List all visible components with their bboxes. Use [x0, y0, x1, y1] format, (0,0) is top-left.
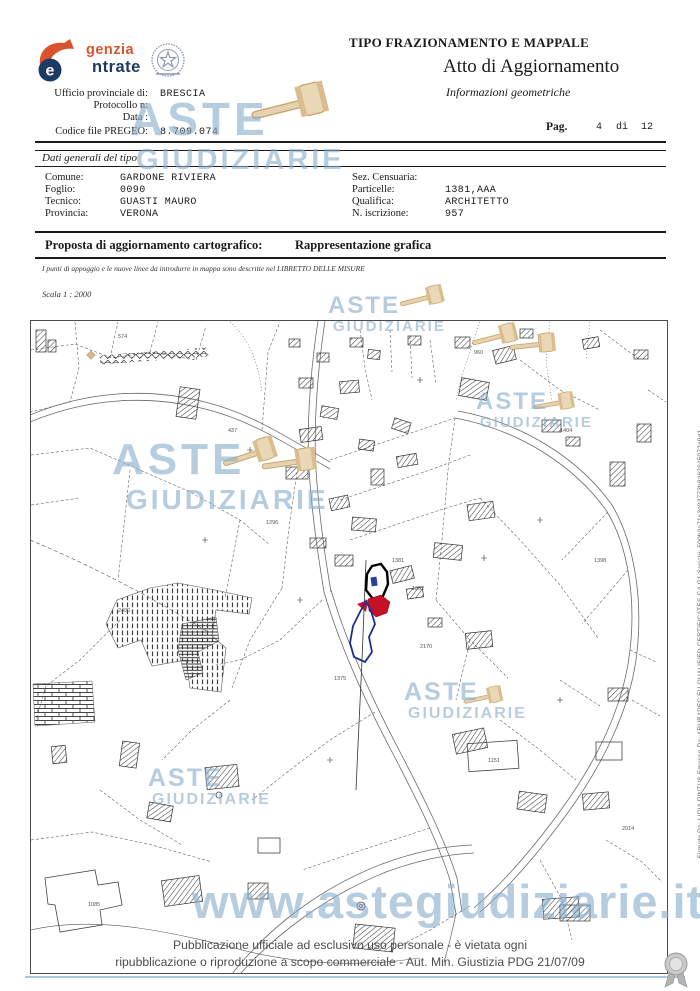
- subject-parcel-mark-blue: [370, 577, 377, 587]
- doc-info: Informazioni geometriche: [446, 85, 570, 100]
- field-value: BRESCIA: [160, 89, 206, 100]
- italian-republic-emblem-icon: [148, 40, 188, 82]
- dg-label: Comune:: [45, 172, 84, 183]
- field-value: 8.709.074: [160, 127, 219, 138]
- dg-value: GUASTI MAURO: [120, 197, 197, 208]
- parcel-label: 1375: [334, 676, 346, 682]
- ribbon-seal-icon: [656, 950, 696, 990]
- divider: [35, 150, 666, 151]
- proposta-value: Rappresentazione grafica: [295, 238, 431, 253]
- gavel-watermark-icon: [396, 280, 452, 316]
- aste-watermark-text: ASTE: [328, 294, 400, 318]
- logo-letter: e: [46, 63, 55, 80]
- dg-label: Qualifica:: [352, 196, 394, 207]
- proposta-label: Proposta di aggiornamento cartografico:: [45, 238, 262, 253]
- page-of: di: [616, 122, 628, 133]
- parcel-label: 2400: [118, 608, 130, 614]
- agenzia-entrate-logo-icon: e: [33, 38, 85, 86]
- map-border: [31, 321, 668, 974]
- parcel-label: 1382: [412, 586, 424, 592]
- dg-value: VERONA: [120, 209, 158, 220]
- parcel-label: 1151: [488, 758, 500, 764]
- parcel-label: 574: [118, 334, 127, 340]
- dg-value: 1381,AAA: [445, 185, 496, 196]
- dg-value: ARCHITETTO: [445, 197, 509, 208]
- parcel-label: 960: [474, 350, 483, 356]
- cadastral-map: 1381 1382 2170 1375 1296 574 960 1398 14…: [30, 320, 668, 974]
- dg-label: Provincia:: [45, 208, 88, 219]
- parcel-label: 1381: [392, 558, 404, 564]
- map-brick-area: [33, 681, 95, 726]
- dg-label: Particelle:: [352, 184, 395, 195]
- document-page: e genzia ntrate TIPO FRAZIONAMENTO E MAP…: [0, 0, 700, 991]
- divider: [35, 166, 666, 167]
- dg-label: Foglio:: [45, 184, 75, 195]
- dg-label: Sez. Censuaria:: [352, 172, 417, 183]
- parcel-label: 1296: [266, 520, 278, 526]
- page-total: 12: [641, 122, 653, 133]
- dg-value: 957: [445, 209, 464, 220]
- divider: [35, 141, 666, 143]
- note-text: I punti di appoggio e le nuove linee da …: [42, 264, 365, 273]
- parcel-label: 2170: [420, 644, 432, 650]
- parcel-label: 1398: [594, 558, 606, 564]
- parcel-label: 437: [228, 428, 237, 434]
- divider: [35, 257, 666, 259]
- logo-word-top: genzia: [86, 42, 134, 58]
- parcel-label: 2014: [622, 826, 634, 832]
- divider: [35, 231, 666, 233]
- logo-word-bottom: ntrate: [92, 58, 141, 77]
- doc-type-title: TIPO FRAZIONAMENTO E MAPPALE: [349, 35, 589, 51]
- page-current: 4: [596, 122, 602, 133]
- parcel-label: 1085: [88, 902, 100, 908]
- gavel-watermark-icon: [244, 74, 341, 137]
- parcel-label: 1404: [560, 428, 572, 434]
- dg-value: GARDONE RIVIERA: [120, 173, 216, 184]
- dg-label: N. iscrizione:: [352, 208, 409, 219]
- header-field-row: Codice file PREGEO: 8.709.074: [30, 121, 219, 139]
- dg-value: 0090: [120, 185, 146, 196]
- page-indicator-label: Pag.: [546, 121, 567, 133]
- section-title: Dati generali del tipo: [42, 152, 137, 164]
- scale-text: Scala 1 : 2000: [42, 289, 91, 299]
- bottom-blue-line: [25, 976, 685, 978]
- dg-label: Tecnico:: [45, 196, 81, 207]
- field-label: Codice file PREGEO:: [30, 126, 148, 137]
- doc-subtitle: Atto di Aggiornamento: [443, 56, 619, 78]
- footer-disclaimer-line: ripubblicazione o riproduzione a scopo c…: [40, 955, 660, 969]
- footer-disclaimer-line: Pubblicazione ufficiale ad esclusivo uso…: [40, 938, 660, 952]
